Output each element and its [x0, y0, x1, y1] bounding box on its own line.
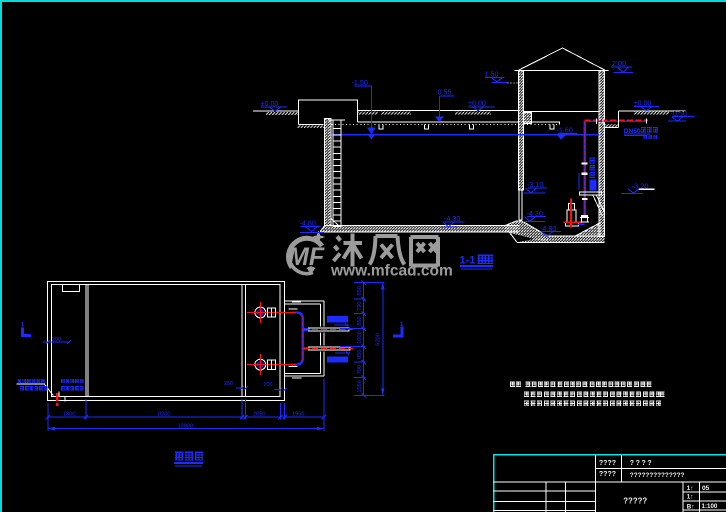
svg-text:±0.00: ±0.00	[261, 99, 279, 108]
svg-text:1↑: 1↑	[687, 485, 694, 492]
svg-text:1950: 1950	[292, 411, 304, 417]
svg-text:05: 05	[702, 485, 710, 492]
svg-text:?????: ?????	[623, 497, 647, 506]
svg-text:200: 200	[264, 382, 273, 388]
svg-text:www.mfcad.com: www.mfcad.com	[330, 263, 453, 280]
svg-text:850: 850	[357, 316, 363, 325]
svg-text:±0.00: ±0.00	[634, 99, 652, 108]
svg-text:??????????????: ??????????????	[630, 472, 685, 479]
svg-text:790: 790	[357, 302, 363, 311]
svg-text:790: 790	[357, 365, 363, 374]
svg-text:MF: MF	[288, 243, 325, 271]
svg-text:1↑: 1↑	[687, 494, 694, 501]
svg-text:1800: 1800	[63, 412, 75, 418]
svg-text:0.55: 0.55	[438, 87, 452, 96]
svg-text:8200: 8200	[158, 411, 170, 417]
svg-text:850: 850	[357, 286, 363, 295]
svg-text:1050: 1050	[357, 380, 363, 392]
svg-text:1000: 1000	[357, 331, 363, 343]
svg-text:250: 250	[224, 381, 233, 387]
svg-text:850: 850	[357, 350, 363, 359]
svg-text:????: ????	[630, 460, 654, 467]
svg-text:2050: 2050	[253, 411, 265, 417]
svg-text:±0.00: ±0.00	[468, 99, 486, 108]
svg-text:1:100: 1:100	[702, 503, 718, 510]
svg-text:13000: 13000	[178, 424, 194, 430]
svg-text:1-1: 1-1	[460, 254, 476, 266]
svg-text:????: ????	[599, 460, 616, 467]
svg-text:6200: 6200	[376, 333, 382, 345]
svg-text:B↑: B↑	[687, 503, 695, 510]
svg-text:????: ????	[599, 471, 616, 478]
